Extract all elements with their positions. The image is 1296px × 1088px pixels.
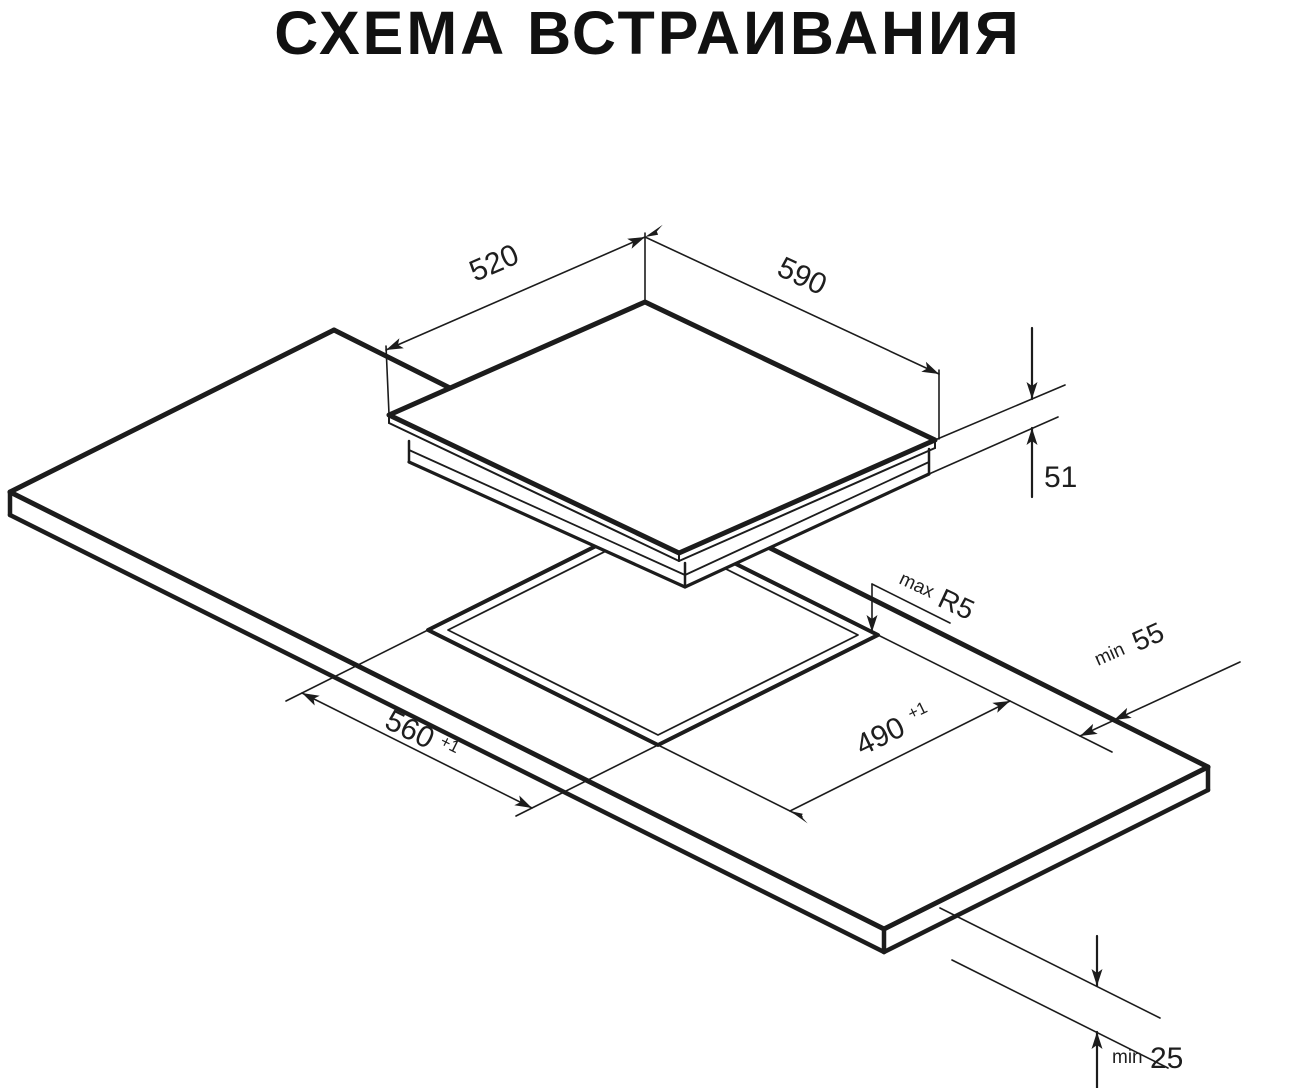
dim-rear-clearance-label: 55 [1127, 616, 1168, 657]
dim-bottom-clearance: min 25 [940, 908, 1183, 1088]
dim-hob-height-label: 51 [1044, 461, 1077, 494]
dim-bottom-clearance-label: 25 [1150, 1042, 1183, 1075]
dim-hob-depth-label: 520 [465, 238, 524, 288]
installation-scheme-page: СХЕМА ВСТРАИВАНИЯ [0, 0, 1296, 1088]
dim-hob-height: 51 [929, 328, 1077, 497]
page-title: СХЕМА ВСТРАИВАНИЯ [274, 0, 1021, 67]
dim-rear-clearance-prefix: min [1091, 639, 1128, 671]
installation-diagram: СХЕМА ВСТРАИВАНИЯ [0, 0, 1296, 1088]
dim-hob-width-label: 590 [772, 251, 831, 302]
dim-corner-radius-prefix: max [896, 568, 938, 602]
hob [389, 302, 935, 587]
dim-cutout-width-tolerance: +1 [437, 731, 463, 757]
dim-cutout-depth-tolerance: +1 [905, 698, 931, 724]
dim-bottom-clearance-prefix: min [1112, 1047, 1143, 1068]
dim-rear-clearance: min 55 [878, 616, 1240, 752]
dim-cutout-width-label: 560 [380, 704, 440, 756]
dim-corner-radius-label: R5 [934, 583, 980, 626]
dimension-annotations: 520 590 51 max R5 [286, 225, 1240, 1088]
